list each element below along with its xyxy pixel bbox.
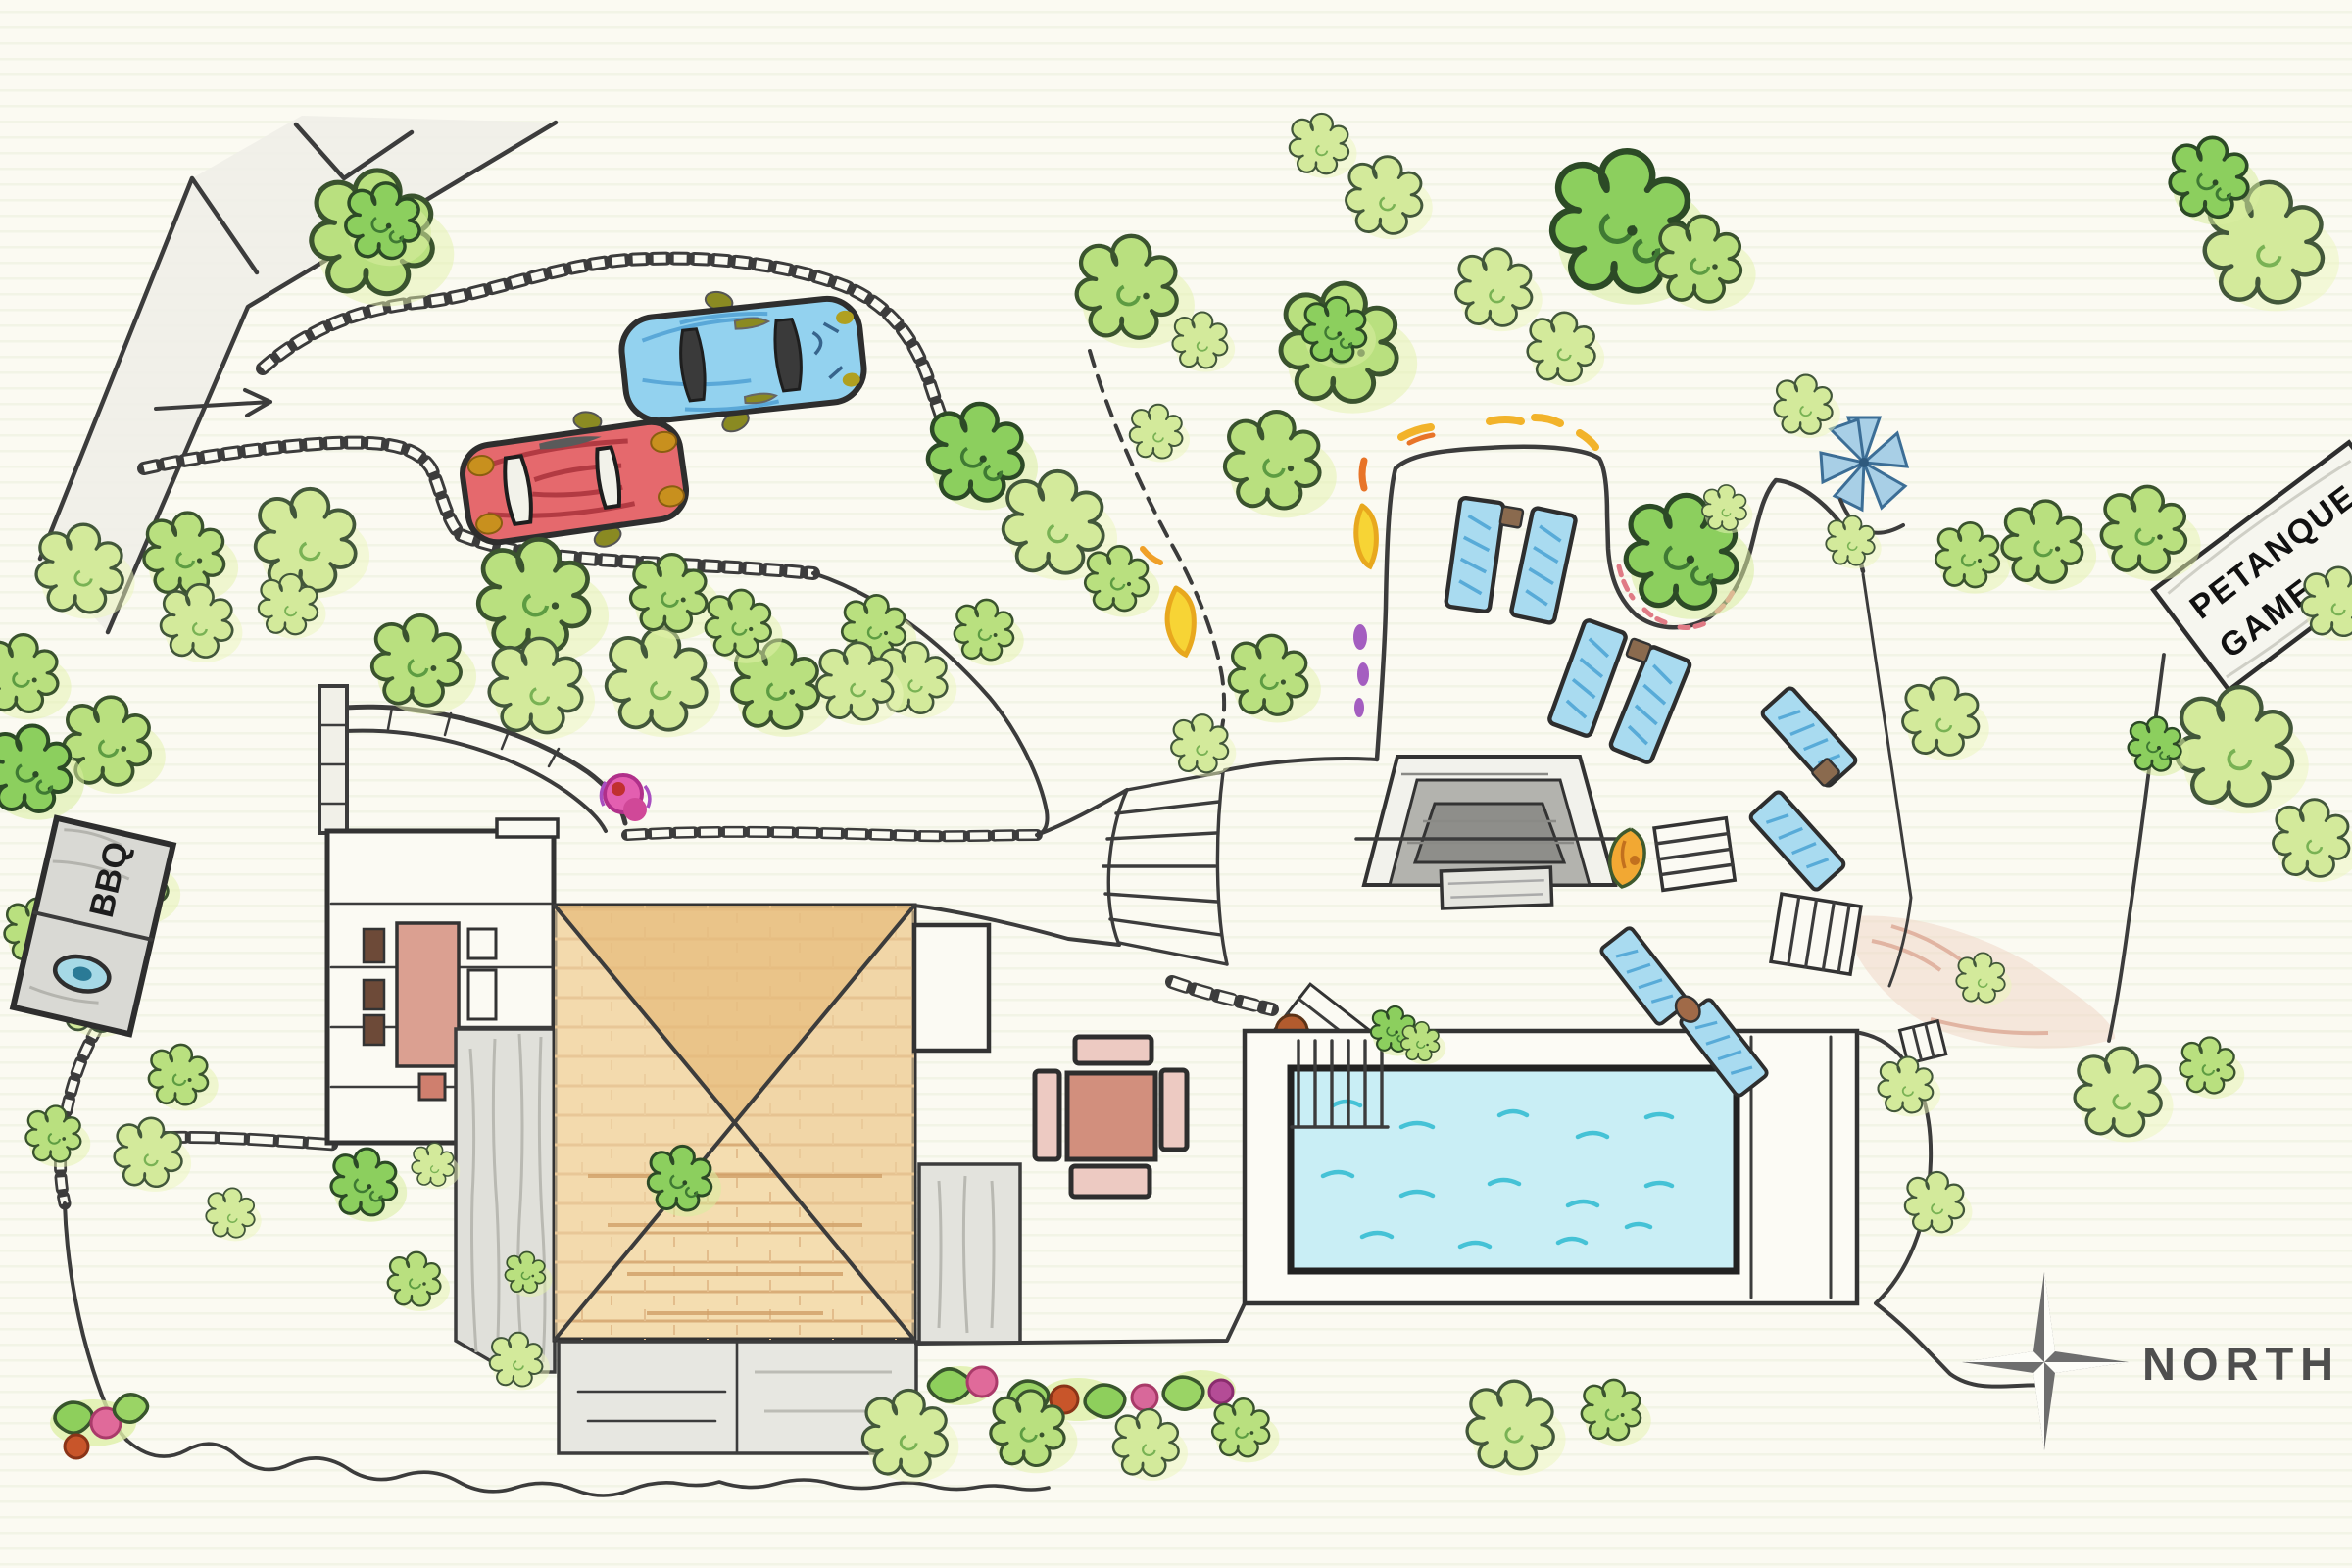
svg-text:NORTH: NORTH <box>2142 1338 2340 1390</box>
